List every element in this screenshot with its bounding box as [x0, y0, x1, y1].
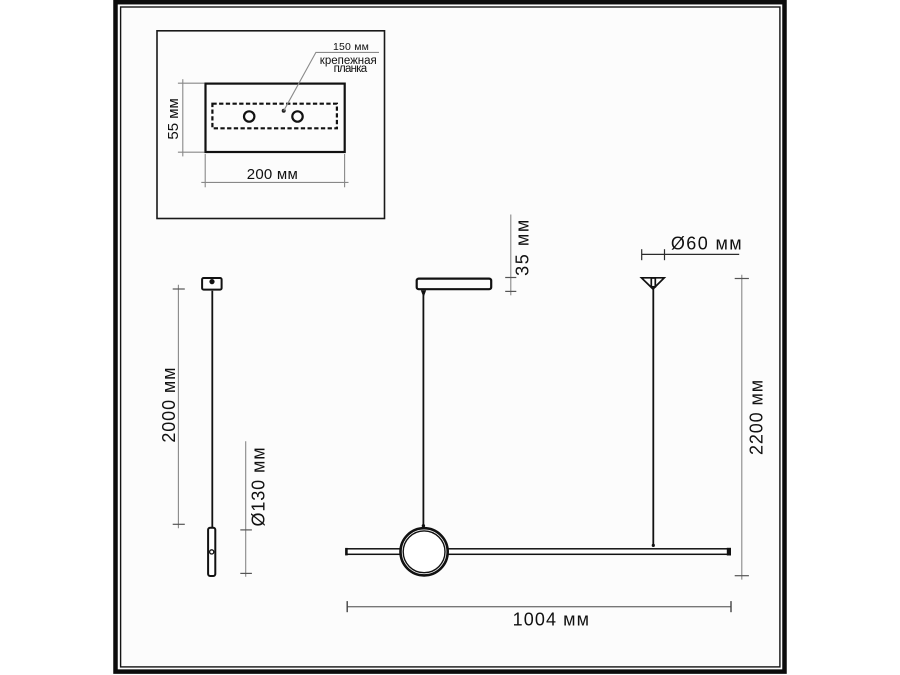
svg-text:200 мм: 200 мм: [247, 166, 298, 183]
svg-text:35 мм: 35 мм: [513, 218, 533, 276]
svg-text:150 мм: 150 мм: [333, 41, 369, 53]
svg-text:1004 мм: 1004 мм: [513, 609, 591, 629]
svg-text:2000 мм: 2000 мм: [159, 367, 179, 443]
svg-text:2200 мм: 2200 мм: [747, 379, 767, 455]
svg-text:55 мм: 55 мм: [165, 98, 182, 139]
svg-text:Ø130 мм: Ø130 мм: [248, 446, 268, 526]
svg-text:планка: планка: [334, 63, 368, 75]
svg-text:Ø60 мм: Ø60 мм: [671, 233, 743, 253]
